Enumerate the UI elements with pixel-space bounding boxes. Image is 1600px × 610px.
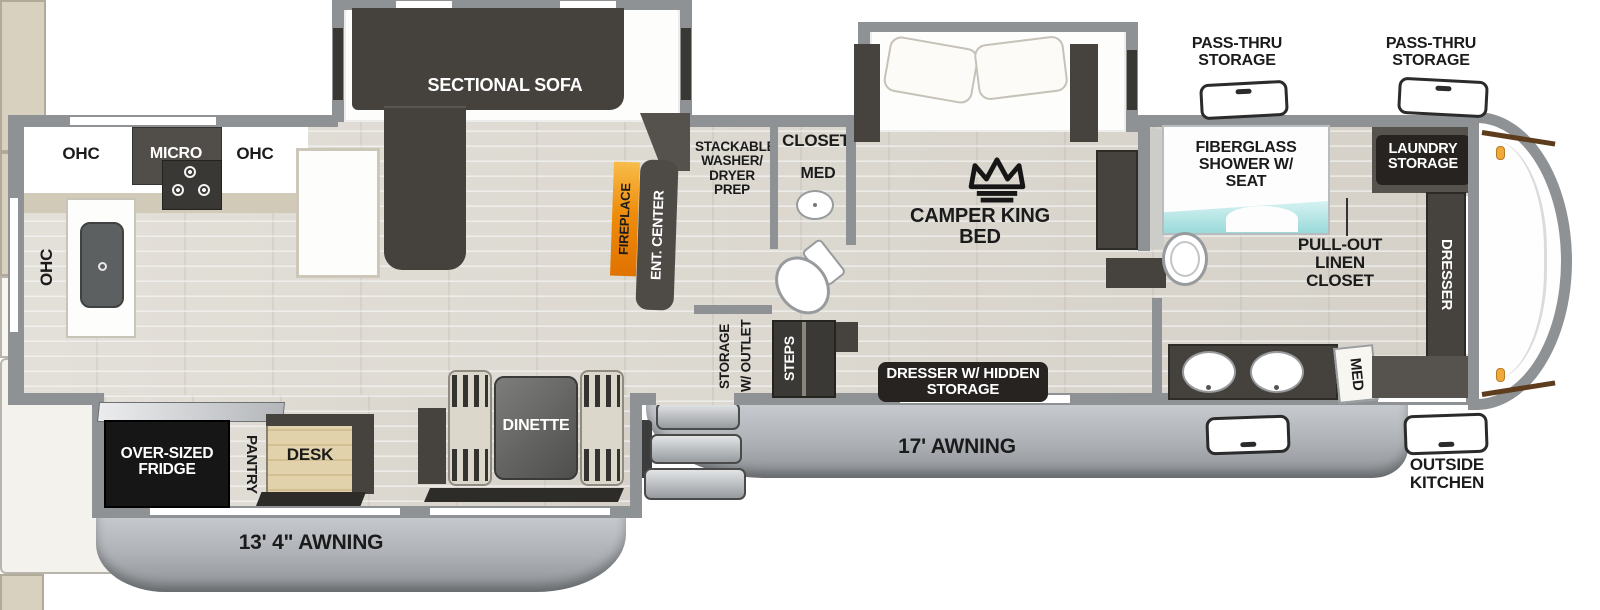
burner-icon <box>184 166 196 178</box>
nightstand <box>1070 44 1098 142</box>
bath-half-wall <box>1106 258 1166 288</box>
dinette-bench <box>580 370 624 486</box>
rv-floorplan: 17' AWNING 13' 4" AWNING <box>0 0 1600 610</box>
bench-slats <box>452 449 488 481</box>
step-tread <box>644 468 746 500</box>
front-dark-zone <box>1372 356 1474 398</box>
slide-window <box>681 28 691 100</box>
linen-pointer <box>1346 198 1348 236</box>
pass-thru-right-door <box>1397 77 1489 119</box>
outside-kitchen-label: OUTSIDE KITCHEN <box>1392 456 1502 492</box>
bench-slats <box>584 375 620 407</box>
king-bed-label: CAMPER KING BED <box>900 206 1060 248</box>
wardrobe <box>1096 150 1138 250</box>
floor-mat <box>256 492 366 506</box>
ent-center-label: ENT. CENTER <box>635 161 678 308</box>
sectional-sofa-chaise <box>384 106 466 270</box>
pass-thru-right-label: PASS-THRU STORAGE <box>1372 36 1490 70</box>
oversized-fridge-label: OVER-SIZED FRIDGE <box>106 446 228 479</box>
fireplace-label: FIREPLACE <box>610 164 640 275</box>
sectional-sofa-back <box>352 8 624 46</box>
entry-steps <box>630 398 755 508</box>
slide-window-gap <box>150 508 400 515</box>
slide-window <box>1127 50 1137 110</box>
slide-window <box>333 28 343 100</box>
storage-outlet-label: STORAGE W/ OUTLET <box>714 310 772 402</box>
bed-pillow <box>973 35 1069 102</box>
marker-light <box>1496 368 1505 382</box>
faucet-icon <box>813 203 817 207</box>
bed-slide-wall <box>858 22 1138 32</box>
burner-icon <box>198 184 210 196</box>
shower-seat <box>1226 206 1298 232</box>
burner-icon <box>172 184 184 196</box>
rear-window <box>10 198 18 332</box>
wall-top <box>680 115 866 127</box>
dresser-front-label: DRESSER <box>1426 196 1466 354</box>
linen-closet <box>0 574 44 610</box>
washer-dryer-label: STACKABLE WASHER/ DRYER PREP <box>695 140 769 197</box>
awning-17ft-label: 17' AWNING <box>862 436 1052 458</box>
bedroom-bath-wall <box>1138 127 1150 251</box>
dinette-bench <box>448 370 492 486</box>
awning-13ft-label: 13' 4" AWNING <box>216 532 406 554</box>
faucet-icon <box>98 262 107 271</box>
step-tread <box>650 434 742 464</box>
faucet-icon <box>1274 385 1279 390</box>
med-label: MED <box>780 166 856 183</box>
fridge-top <box>97 402 285 422</box>
kitchen-peninsula <box>296 148 380 278</box>
desk-label: DESK <box>268 446 352 464</box>
floor-mat <box>424 488 624 502</box>
slide-window-gap <box>430 508 610 515</box>
rear-slide-wall <box>630 395 642 518</box>
dinette-label: DINETTE <box>492 418 580 435</box>
desk-hutch <box>266 414 358 426</box>
pass-thru-left-door <box>1199 80 1289 121</box>
outside-kitchen-door <box>1403 413 1488 456</box>
ohc-right-label: OHC <box>210 145 300 163</box>
bench-slats <box>452 375 488 407</box>
step-tread <box>656 402 740 430</box>
bath-wall <box>846 127 856 245</box>
faucet-icon <box>1206 385 1211 390</box>
door-handle <box>1240 442 1256 448</box>
door-handle <box>1435 86 1451 92</box>
vanity-wall <box>1152 298 1162 398</box>
marker-light <box>1496 146 1505 160</box>
sectional-sofa-label: SECTIONAL SOFA <box>420 76 590 95</box>
steps-wall-stub <box>836 322 858 352</box>
laundry-storage-label: LAUNDRY STORAGE <box>1378 142 1468 173</box>
toilet-front-ring <box>1170 241 1200 277</box>
pass-thru-left-label: PASS-THRU STORAGE <box>1178 36 1296 70</box>
linen-closet-label: PULL-OUT LINEN CLOSET <box>1282 236 1398 290</box>
crown-icon <box>962 156 1032 204</box>
bench-slats <box>584 449 620 481</box>
door-handle <box>1438 442 1454 448</box>
shower-label: FIBERGLASS SHOWER W/ SEAT <box>1182 140 1310 191</box>
steps-label: STEPS <box>774 322 804 396</box>
nightstand <box>854 44 880 142</box>
desk-side <box>352 414 374 494</box>
baggage-door <box>1205 415 1290 456</box>
window-gap <box>70 117 216 125</box>
ohc-side-label: OHC <box>24 212 70 322</box>
ohc-left-label: OHC <box>36 145 126 163</box>
dinette-half-wall <box>418 408 446 484</box>
door-handle <box>1235 89 1251 95</box>
dresser-hidden-storage-label: DRESSER W/ HIDDEN STORAGE <box>880 366 1046 398</box>
